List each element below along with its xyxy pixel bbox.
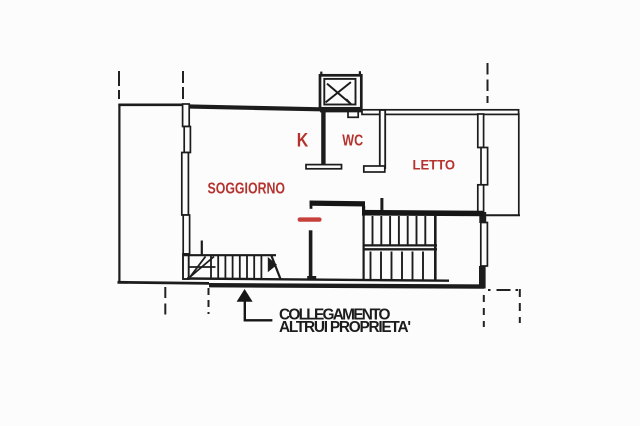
- svg-text:WC: WC: [342, 133, 363, 150]
- svg-text:LETTO: LETTO: [413, 158, 456, 174]
- svg-text:ALTRUI PROPRIETA': ALTRUI PROPRIETA': [279, 319, 411, 336]
- svg-text:K: K: [297, 129, 309, 151]
- svg-text:SOGGIORNO: SOGGIORNO: [208, 180, 286, 197]
